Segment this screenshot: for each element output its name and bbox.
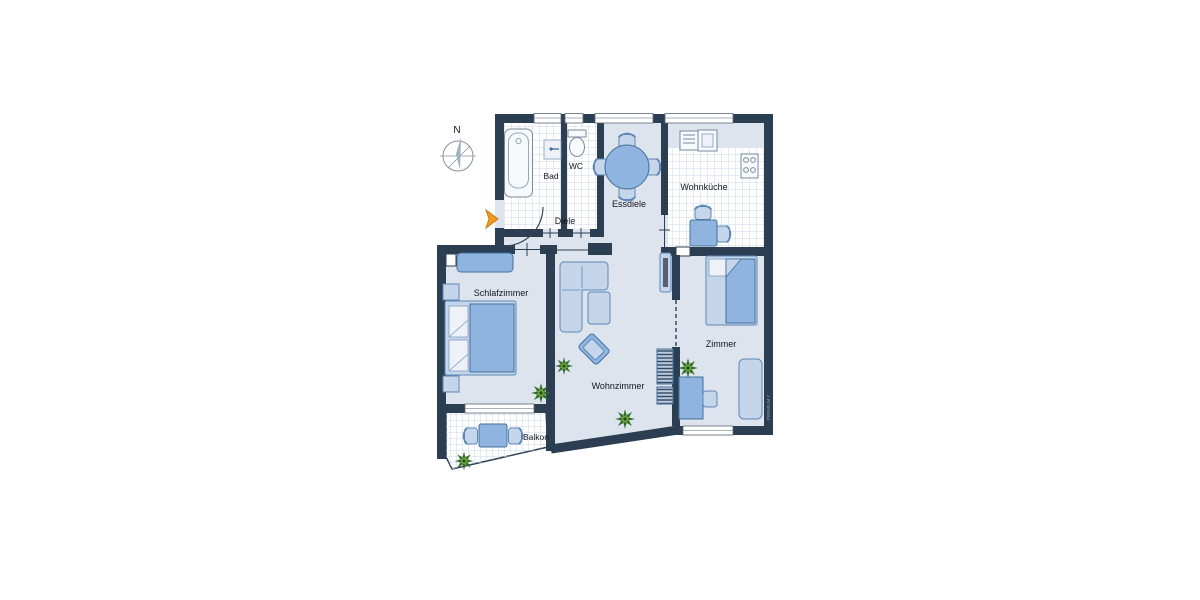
tv-board	[660, 253, 671, 292]
label-schlafzimmer: Schlafzimmer	[474, 288, 529, 298]
sideboard-upper	[657, 349, 673, 384]
compass-north-label: N	[453, 125, 460, 136]
sideboard-lower	[657, 387, 673, 404]
balcony-plant-icon	[455, 452, 474, 471]
balcony-table	[479, 424, 507, 447]
window-bad	[534, 114, 561, 124]
nightstand-bottom	[443, 376, 459, 392]
bathtub	[505, 129, 533, 197]
floorplan-svg: N Bad WC Essdiele Diele Wohnküche Schlaf…	[0, 0, 1200, 600]
floorplan-canvas: N Bad WC Essdiele Diele Wohnküche Schlaf…	[0, 0, 1200, 600]
label-wc: WC	[569, 161, 583, 171]
wc-tiles	[567, 123, 597, 229]
label-wohnkueche: Wohnküche	[680, 182, 727, 192]
dining-table	[605, 145, 649, 189]
window-schlafzimmer-balcony	[465, 404, 534, 413]
window-kitchen	[665, 114, 733, 124]
plant-icon-bedroom	[531, 383, 551, 403]
desk-chair	[703, 391, 717, 407]
window-zimmer	[683, 426, 733, 435]
label-essdiele: Essdiele	[612, 199, 646, 209]
stove	[741, 154, 758, 178]
plant-icon-living-bottom	[615, 409, 635, 429]
washbasin	[544, 140, 561, 159]
label-diele: Diele	[555, 216, 576, 226]
label-zimmer: Zimmer	[706, 339, 737, 349]
desk	[679, 377, 703, 419]
wall-niche	[676, 247, 690, 256]
kitchen-counter	[680, 130, 717, 151]
balcony-chair-right	[509, 428, 523, 445]
kitchen-table	[690, 220, 717, 246]
dresser	[457, 253, 513, 272]
plant-icon-living-left	[555, 357, 573, 375]
bedroom-niche	[446, 254, 456, 266]
room-sofa	[739, 359, 762, 419]
nightstand-top	[443, 284, 459, 300]
watermark-text: PREMIUM 7	[766, 395, 771, 421]
balcony-chair-left	[464, 428, 478, 445]
compass-rose: N	[440, 125, 476, 171]
toilet	[568, 130, 586, 157]
single-bed	[706, 256, 757, 325]
label-balkon: Balkon	[523, 432, 549, 442]
double-bed	[445, 301, 516, 375]
plant-icon-room	[678, 358, 698, 378]
window-essdiele	[595, 114, 653, 124]
label-bad: Bad	[543, 171, 558, 181]
label-wohnzimmer: Wohnzimmer	[592, 381, 645, 391]
window-wc	[565, 114, 583, 124]
coffee-table	[588, 292, 610, 324]
